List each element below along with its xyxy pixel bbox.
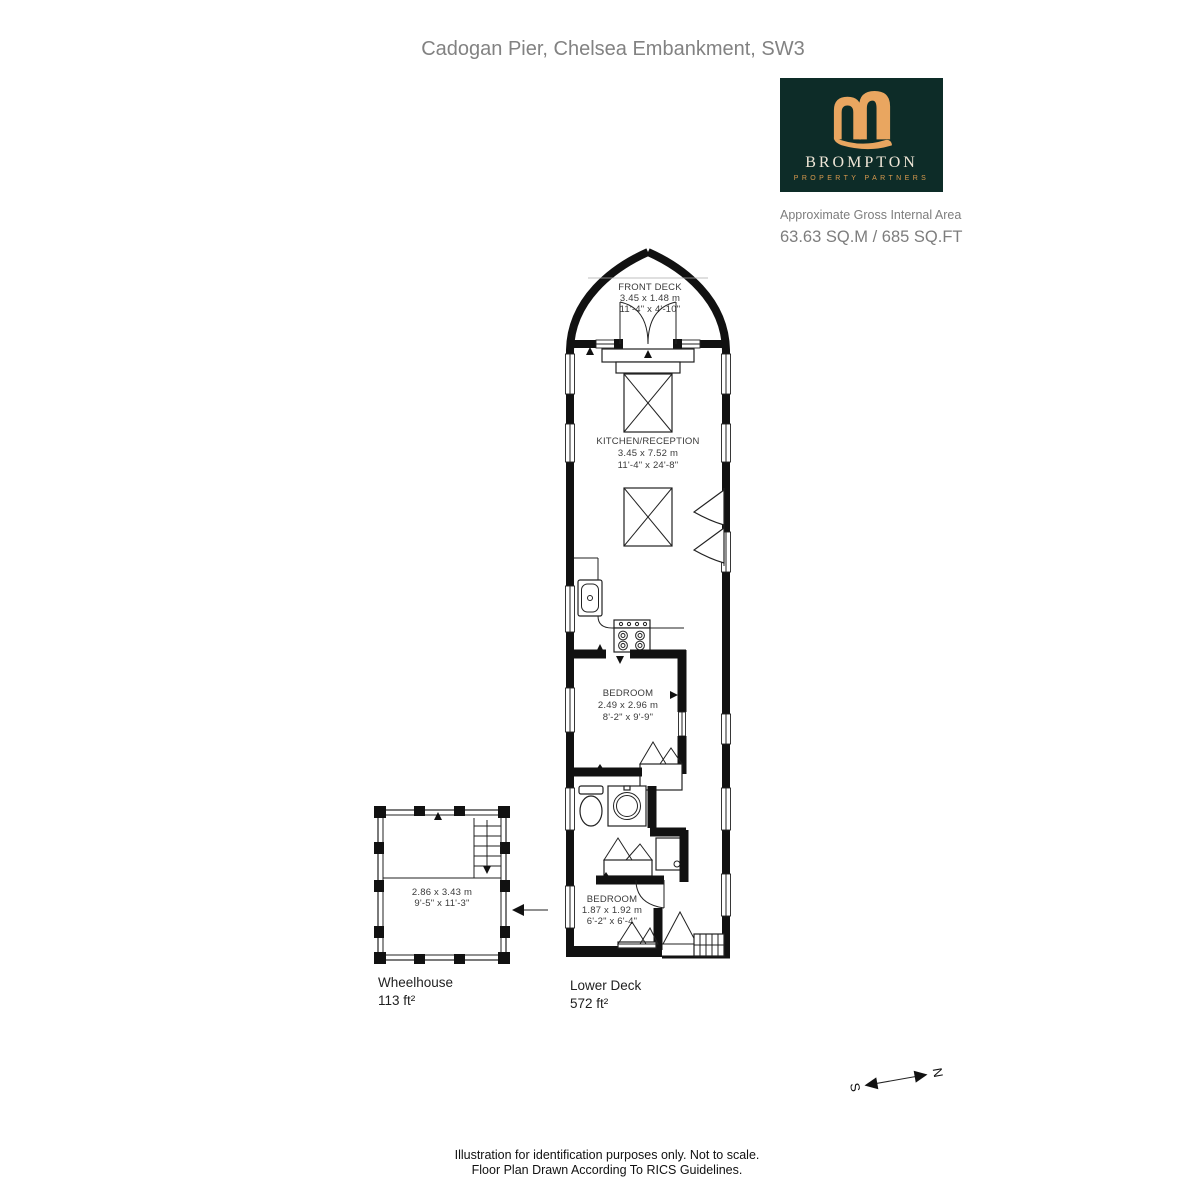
bedroom1-imperial: 8'-2" x 9'-9": [603, 712, 653, 723]
kitchen-name: KITCHEN/RECEPTION: [596, 436, 699, 447]
brompton-logo-icon: [827, 89, 897, 151]
wheelhouse: 2.86 x 3.43 m 9'-5" x 11'-3": [374, 806, 548, 964]
footer-line-2: Floor Plan Drawn According To RICS Guide…: [472, 1163, 743, 1177]
lower-deck-area: 572 ft²: [570, 996, 609, 1011]
floorplan-page: Cadogan Pier, Chelsea Embankment, SW3 Ap…: [0, 0, 1200, 1200]
bedroom1-name: BEDROOM: [603, 688, 654, 699]
compass-south: S: [847, 1082, 863, 1093]
page-title: Cadogan Pier, Chelsea Embankment, SW3: [421, 38, 805, 60]
hob-icon: [614, 620, 650, 652]
sink-icon: [578, 580, 602, 616]
entry-arrow-icon: [512, 904, 548, 916]
stairs-icon: [694, 934, 724, 956]
bedroom-2: BEDROOM 1.87 x 1.92 m 6'-2" x 6'-4": [582, 872, 724, 956]
bedroom2-metric: 1.87 x 1.92 m: [582, 905, 642, 916]
front-deck-name: FRONT DECK: [618, 282, 682, 293]
brand-tagline: PROPERTY PARTNERS: [794, 175, 929, 182]
basin-icon: [608, 786, 646, 826]
area-label: Approximate Gross Internal Area: [780, 208, 961, 222]
skylight-icon: [624, 488, 672, 546]
kitchen-imperial: 11'-4" x 24'-8": [618, 460, 679, 471]
lower-deck-label: Lower Deck: [570, 978, 642, 993]
footer-line-1: Illustration for identification purposes…: [455, 1148, 760, 1162]
brand-name: BROMPTON: [805, 154, 918, 172]
bedroom2-name: BEDROOM: [587, 894, 638, 905]
front-deck-metric: 3.45 x 1.48 m: [620, 293, 680, 304]
wheelhouse-area: 113 ft²: [378, 993, 416, 1008]
compass-icon: S N: [847, 1065, 947, 1094]
bedroom1-metric: 2.49 x 2.96 m: [598, 700, 658, 711]
front-deck-imperial: 11'-4" x 4'-10": [620, 304, 681, 315]
wardrobe-icon: [640, 742, 682, 790]
compass-north: N: [930, 1067, 946, 1079]
wheelhouse-label: Wheelhouse: [378, 975, 453, 990]
area-value: 63.63 SQ.M / 685 SQ.FT: [780, 228, 963, 246]
kitchen-metric: 3.45 x 7.52 m: [618, 448, 678, 459]
toilet-icon: [579, 786, 603, 826]
skylight-icon: [624, 374, 672, 432]
wardrobe-icon: [604, 838, 652, 876]
kitchen-reception: KITCHEN/RECEPTION 3.45 x 7.52 m 11'-4" x…: [574, 374, 724, 652]
cupboard-doors-icon: [694, 488, 724, 566]
brand-logo-card: BROMPTON PROPERTY PARTNERS: [780, 78, 943, 192]
floorplan-drawing: Cadogan Pier, Chelsea Embankment, SW3 Ap…: [0, 0, 1200, 1200]
wardrobe-icon: [663, 912, 697, 944]
wheelhouse-metric: 2.86 x 3.43 m: [412, 887, 472, 898]
wheelhouse-imperial: 9'-5" x 11'-3": [414, 898, 469, 909]
